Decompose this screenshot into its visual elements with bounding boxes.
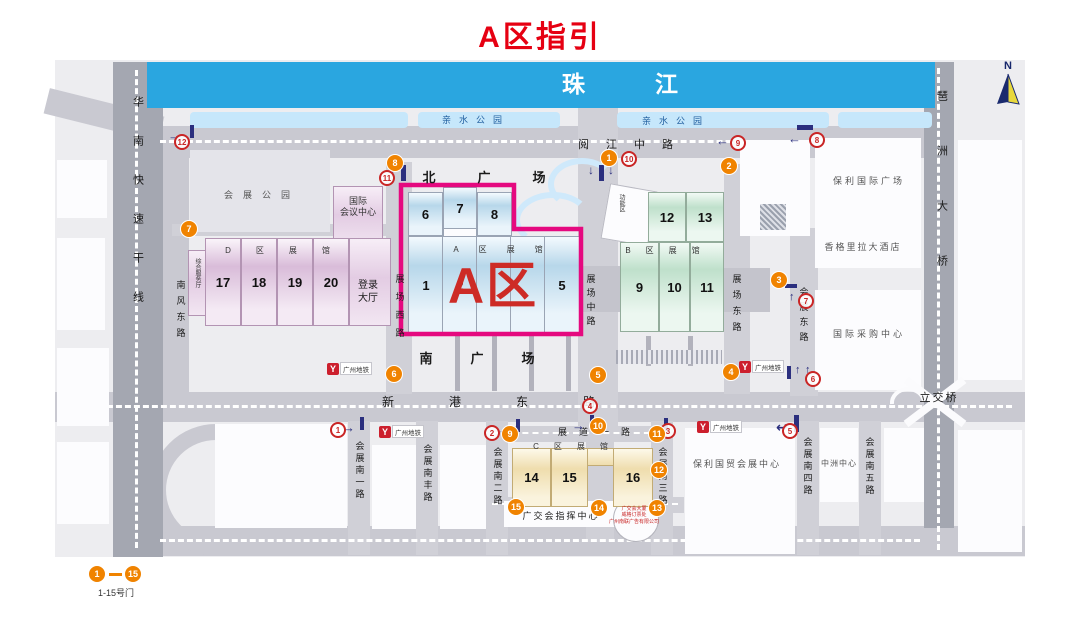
poly-intl-plaza: 保利国际广场 [833, 176, 905, 187]
metro-station-3: Y广州地铁 [697, 420, 742, 433]
pearl-river: 珠江 [562, 70, 748, 99]
traffic-bar-6 [785, 284, 797, 288]
intl-convention-center: 国际 会议中心 [340, 196, 376, 219]
zhongzhou-center: 中洲中心 [821, 459, 857, 469]
zhanchang-west-rd: 展场西路 [395, 274, 404, 346]
metro-station-2: Y广州地铁 [739, 360, 784, 373]
north-plaza: 北广场 [422, 170, 587, 186]
entry-marker-11: 11 [379, 170, 395, 186]
south-plaza: 南广场 [419, 351, 572, 367]
traffic-arrow-3: → [572, 419, 585, 432]
gate-15: 15 [507, 498, 525, 516]
area-c-hall-row: C区展馆 [533, 442, 623, 452]
guangzhou-metro-icon: Y [697, 421, 709, 433]
guangzhou-metro-icon: Y [327, 363, 339, 375]
entry-marker-12: 12 [174, 134, 190, 150]
gate-6: 6 [385, 365, 403, 383]
legend-gate-start: 1 [88, 565, 106, 583]
traffic-arrow-7: ↑ [789, 292, 795, 303]
entry-marker-7: 7 [798, 293, 814, 309]
traffic-bar-10 [190, 125, 194, 138]
legend-range-dash [109, 573, 122, 576]
zhanchang-middle-rd: 展场中路 [586, 274, 595, 330]
compass-n: N [1004, 60, 1012, 74]
poly-trade-center: 保利国贸会展中心 [693, 459, 781, 470]
gate-8: 8 [386, 154, 404, 172]
gate-5: 5 [589, 366, 607, 384]
metro-label: 广州地铁 [752, 360, 784, 373]
gate-13: 13 [648, 499, 666, 517]
legend-label: 1-15号门 [98, 586, 134, 599]
entry-marker-10: 10 [621, 151, 637, 167]
huizhan-south-2-rd: 会展南二路 [493, 447, 502, 507]
entry-marker-8: 8 [809, 132, 825, 148]
gate-11: 11 [648, 425, 666, 443]
gate-10: 10 [589, 417, 607, 435]
area-a-big-label: A区 [448, 246, 538, 318]
traffic-arrow-8: ← [788, 132, 801, 145]
gate-9: 9 [501, 425, 519, 443]
nanfeng-east-rd: 南风东路 [176, 280, 185, 344]
entry-marker-5: 5 [782, 423, 798, 439]
guangzhou-metro-icon: Y [739, 361, 751, 373]
shangri-la-hotel: 香格里拉大酒店 [824, 242, 901, 253]
area-d-hall-row: D区展馆 [225, 246, 355, 256]
metro-label: 广州地铁 [710, 420, 742, 433]
traffic-arrow-9: ← [716, 134, 729, 147]
entry-marker-2: 2 [484, 425, 500, 441]
area-a-hall-row: A区展馆 [453, 245, 562, 255]
entry-marker-1: 1 [330, 422, 346, 438]
compass-north-icon [997, 74, 1008, 104]
entry-marker-6: 6 [805, 371, 821, 387]
waterfront-park-1: 亲水公园 [442, 115, 510, 126]
service-hall: 综合服务厅 [194, 258, 200, 288]
legend-gate-end: 15 [124, 565, 142, 583]
metro-station-1: Y广州地铁 [379, 425, 424, 438]
metro-label: 广州地铁 [340, 362, 372, 375]
traffic-bar-8 [599, 165, 604, 181]
xingang-east-rd: 新港东路 [382, 395, 650, 410]
overpass: 立交桥 [920, 392, 959, 406]
function-zone: 功能区 [618, 194, 624, 212]
traffic-bar-5 [787, 366, 791, 379]
traffic-bar-0 [360, 417, 364, 430]
guangzhou-metro-icon: Y [379, 426, 391, 438]
gate-7: 7 [180, 220, 198, 238]
gate-14: 14 [590, 499, 608, 517]
yuejiang-middle-rd: 阅江中路 [578, 139, 690, 153]
gate-3: 3 [770, 271, 788, 289]
map-overlay-svg [0, 0, 1080, 626]
intl-sourcing-center: 国际采购中心 [833, 329, 905, 340]
gate-12: 12 [650, 461, 668, 479]
gate-1: 1 [600, 149, 618, 167]
compass-north-icon [1008, 74, 1019, 104]
registration-hall: 登录 大厅 [358, 280, 378, 305]
entry-marker-9: 9 [730, 135, 746, 151]
area-a-guide-map: A区指引 [0, 0, 1080, 626]
huizhan-south-4-rd: 会展南四路 [803, 437, 812, 497]
area-b-hall-row: B区展馆 [625, 246, 714, 256]
huizhan-south-5-rd: 会展南五路 [865, 437, 874, 497]
traffic-bar-7 [797, 125, 813, 130]
traffic-arrow-5: ↑ [795, 365, 801, 376]
gate-2: 2 [720, 157, 738, 175]
exhibition-park: 会展公园 [224, 190, 300, 201]
traffic-arrow-10: ↓ [588, 164, 594, 176]
gate-4: 4 [722, 363, 740, 381]
entry-marker-4: 4 [582, 398, 598, 414]
metro-label: 广州地铁 [392, 425, 424, 438]
pazhou-bridge: 琶洲大桥 [936, 90, 947, 310]
metro-station-0: Y广州地铁 [327, 362, 372, 375]
huizhan-south-1-rd: 会展南一路 [355, 441, 364, 501]
waterfront-park-2: 亲水公园 [642, 116, 710, 127]
huanan-expressway: 华南快速干线 [132, 96, 143, 330]
huizhan-south-feng-rd: 会展南丰路 [423, 444, 432, 504]
zhanchang-east-rd: 展场东路 [732, 274, 741, 338]
fair-command-center: 广交会指挥中心 [522, 511, 599, 522]
page-title: A区指引 [0, 12, 1080, 56]
